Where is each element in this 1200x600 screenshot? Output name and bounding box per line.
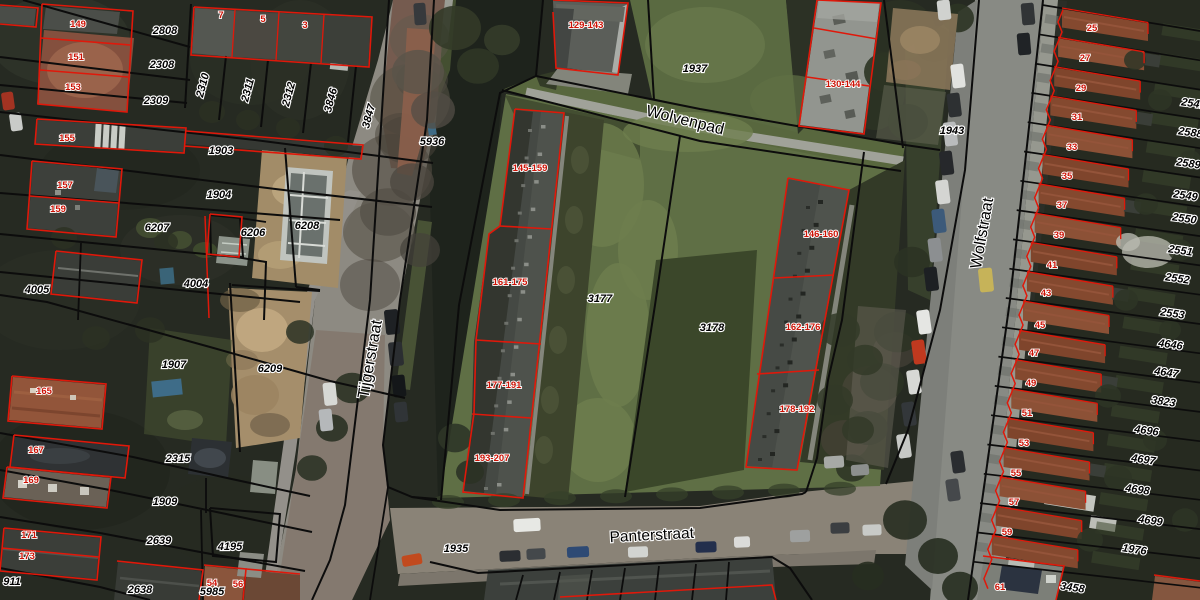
svg-text:25: 25 (1087, 23, 1098, 34)
svg-text:157: 157 (57, 180, 73, 191)
svg-text:161-175: 161-175 (493, 277, 529, 288)
svg-text:2639: 2639 (146, 535, 172, 547)
svg-text:3: 3 (302, 20, 307, 31)
svg-text:167: 167 (28, 445, 44, 456)
svg-text:2309: 2309 (143, 95, 169, 107)
svg-text:130-144: 130-144 (826, 79, 862, 90)
svg-text:49: 49 (1026, 378, 1037, 389)
svg-text:145-159: 145-159 (513, 163, 548, 174)
svg-text:61: 61 (995, 582, 1006, 593)
svg-text:1904: 1904 (207, 189, 231, 201)
svg-text:5: 5 (260, 14, 266, 25)
svg-text:31: 31 (1072, 112, 1083, 123)
svg-text:6208: 6208 (295, 220, 320, 232)
svg-text:5936: 5936 (420, 136, 445, 148)
svg-text:2638: 2638 (127, 584, 153, 596)
svg-text:4004: 4004 (183, 278, 208, 290)
svg-text:178-192: 178-192 (780, 404, 815, 415)
svg-text:155: 155 (59, 133, 76, 144)
svg-text:1943: 1943 (940, 125, 964, 137)
svg-text:53: 53 (1019, 438, 1030, 449)
svg-text:4005: 4005 (24, 284, 50, 296)
svg-text:4195: 4195 (217, 541, 243, 553)
svg-text:3177: 3177 (588, 293, 613, 305)
svg-text:162-176: 162-176 (786, 322, 821, 333)
svg-text:37: 37 (1057, 200, 1068, 211)
svg-text:1935: 1935 (444, 543, 469, 555)
svg-text:45: 45 (1035, 320, 1046, 331)
svg-text:6206: 6206 (241, 227, 266, 239)
svg-text:165: 165 (36, 386, 53, 397)
svg-text:2308: 2308 (149, 59, 175, 71)
svg-text:33: 33 (1067, 142, 1078, 153)
svg-text:177-191: 177-191 (487, 380, 523, 391)
svg-text:911: 911 (3, 576, 21, 588)
svg-text:1909: 1909 (153, 496, 178, 508)
svg-text:57: 57 (1009, 497, 1020, 508)
svg-text:56: 56 (233, 579, 244, 590)
svg-text:169: 169 (23, 475, 39, 486)
svg-text:35: 35 (1062, 171, 1073, 182)
svg-text:146-160: 146-160 (804, 229, 839, 240)
svg-text:43: 43 (1041, 288, 1052, 299)
svg-text:54: 54 (207, 578, 218, 589)
svg-text:173: 173 (19, 551, 35, 562)
svg-text:7: 7 (218, 10, 223, 21)
svg-text:47: 47 (1029, 348, 1040, 359)
svg-text:149: 149 (70, 19, 86, 30)
svg-text:193-207: 193-207 (475, 453, 510, 464)
svg-text:151: 151 (68, 52, 85, 63)
svg-text:6209: 6209 (258, 363, 283, 375)
svg-text:59: 59 (1002, 527, 1013, 538)
svg-text:55: 55 (1011, 468, 1022, 479)
svg-text:6207: 6207 (145, 222, 170, 234)
svg-text:129-143: 129-143 (569, 20, 604, 31)
svg-text:41: 41 (1047, 260, 1058, 271)
svg-text:153: 153 (65, 82, 81, 93)
svg-text:1903: 1903 (209, 145, 233, 157)
svg-text:29: 29 (1076, 83, 1087, 94)
svg-text:159: 159 (50, 204, 66, 215)
svg-text:39: 39 (1054, 230, 1065, 241)
svg-text:3178: 3178 (700, 322, 725, 334)
svg-text:27: 27 (1080, 53, 1091, 64)
svg-text:1907: 1907 (162, 359, 187, 371)
svg-text:2315: 2315 (165, 453, 191, 465)
svg-text:1937: 1937 (683, 63, 708, 75)
svg-text:51: 51 (1022, 408, 1033, 419)
svg-text:171: 171 (21, 530, 38, 541)
svg-text:2808: 2808 (152, 25, 178, 37)
